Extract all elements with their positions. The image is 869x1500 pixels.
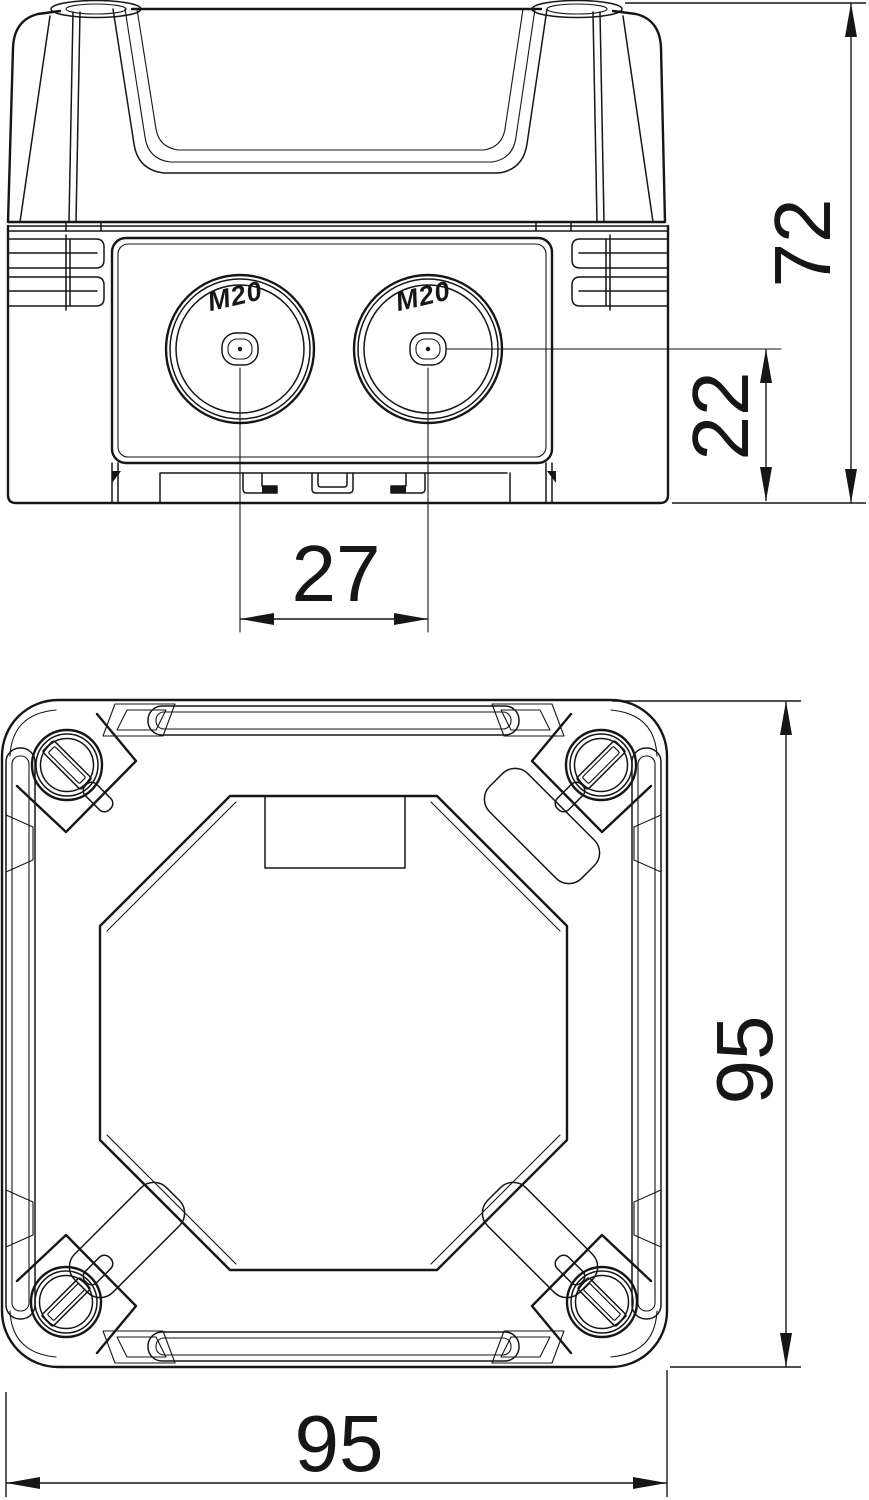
dim-72-label: 72 — [758, 199, 847, 288]
drawing-canvas: M20 M20 72 22 2 — [0, 0, 869, 1500]
lid-recess-mid — [125, 9, 535, 162]
bottom-band — [112, 463, 556, 503]
corner-inner-arcs — [10, 710, 657, 1357]
dimension-entry-spacing: 27 — [240, 529, 428, 625]
technical-drawing: M20 M20 72 22 2 — [0, 0, 869, 1500]
lid-recess-inner — [137, 9, 523, 150]
knockout-right-label: M20 — [393, 275, 454, 317]
lid-body-seam — [8, 222, 668, 231]
dimension-entry-height: 22 — [676, 349, 772, 501]
side-view: M20 M20 — [8, 1, 781, 633]
label-recess — [265, 796, 405, 868]
front-panel-inner — [118, 244, 546, 457]
lid-screw-left-icon — [51, 1, 141, 18]
vent-right — [572, 235, 668, 310]
lid-recess-outer — [113, 9, 547, 173]
lid-face-lines — [20, 12, 653, 222]
vent-left — [8, 235, 104, 310]
lid-octagon — [100, 796, 567, 1270]
membrane-pads — [62, 761, 607, 1305]
body-outline — [8, 226, 668, 503]
edge-channels — [6, 706, 661, 1361]
dim-95-bottom-label: 95 — [295, 1399, 384, 1488]
lid-outline — [8, 9, 665, 222]
corner-pockets — [17, 714, 651, 1353]
dim-27-label: 27 — [292, 529, 381, 618]
bottom-view — [2, 700, 667, 1367]
dim-22-label: 22 — [676, 372, 765, 461]
screw-latch-tabs — [80, 779, 587, 1287]
knockout-left-label: M20 — [205, 275, 266, 317]
dim-95-right-label: 95 — [700, 1016, 789, 1105]
dimension-depth: 95 — [612, 701, 801, 1367]
dimension-width: 95 — [6, 1370, 667, 1497]
front-panel — [112, 238, 552, 463]
channel-clips — [6, 704, 661, 1363]
octagon-chamfer-lines — [107, 802, 560, 1264]
